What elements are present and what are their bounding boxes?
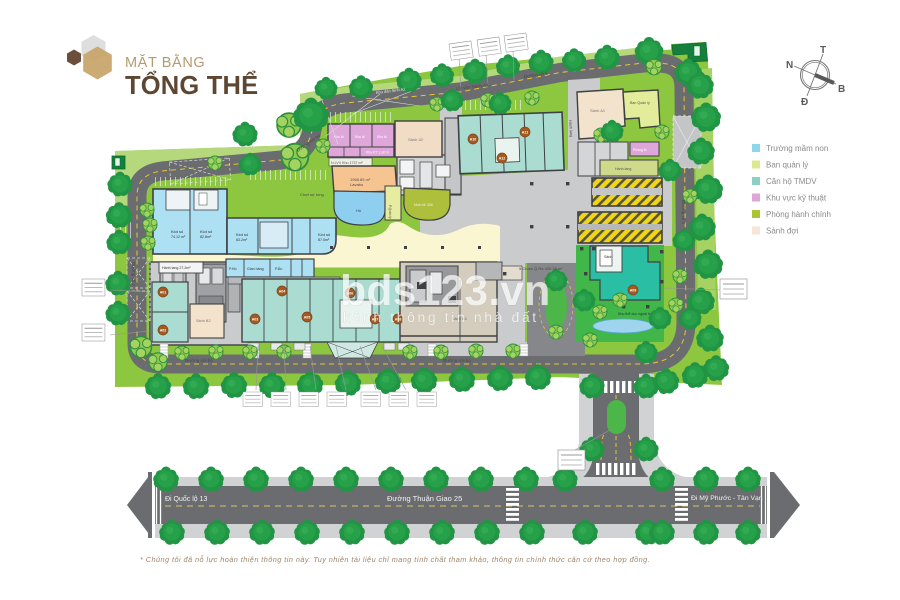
svg-text:* Chúng tôi đã nỗ lực hoàn thi: * Chúng tôi đã nỗ lực hoàn thiện thông t…	[140, 555, 650, 564]
svg-text:82.8m²: 82.8m²	[200, 235, 212, 239]
svg-text:A02: A02	[160, 329, 167, 333]
svg-text:A11: A11	[522, 131, 528, 135]
svg-text:Đường số 3: Đường số 3	[681, 200, 686, 224]
svg-text:T: T	[820, 45, 826, 56]
svg-text:Đường nội bộ: Đường nội bộ	[185, 358, 213, 363]
svg-text:Đ: Đ	[801, 97, 808, 108]
svg-text:A03: A03	[252, 318, 259, 322]
svg-text:Nhà trẻ 308: Nhà trẻ 308	[414, 203, 433, 207]
svg-text:Kiot số: Kiot số	[171, 229, 184, 234]
svg-text:Khu thể dục ngoài trời: Khu thể dục ngoài trời	[618, 312, 654, 316]
svg-text:Đường nội bộ: Đường nội bộ	[443, 358, 471, 363]
svg-text:Khu kt: Khu kt	[377, 135, 387, 139]
svg-text:kênh thông tin nhà đất: kênh thông tin nhà đất	[343, 309, 539, 325]
svg-text:Sảnh đợi: Sảnh đợi	[766, 227, 799, 236]
svg-text:Khu vực kỹ thuật: Khu vực kỹ thuật	[766, 194, 827, 203]
svg-text:Sảnh A1: Sảnh A1	[590, 108, 606, 113]
svg-text:Hồ: Hồ	[356, 208, 362, 213]
svg-text:Phòng kt: Phòng kt	[633, 148, 646, 152]
svg-text:Đường số 2: Đường số 2	[131, 262, 136, 286]
svg-text:Kiot số: Kiot số	[318, 232, 331, 237]
svg-text:N.LVV Khu 1737 m²: N.LVV Khu 1737 m²	[331, 161, 363, 165]
svg-text:MẶT BẰNG: MẶT BẰNG	[125, 53, 205, 71]
svg-text:Hành lang 27.2m²: Hành lang 27.2m²	[162, 266, 191, 270]
svg-text:TỔNG THỂ: TỔNG THỂ	[125, 70, 258, 100]
svg-text:Ban quản lý: Ban quản lý	[766, 161, 808, 170]
svg-text:Phòng hành chính: Phòng hành chính	[766, 210, 831, 219]
svg-text:Đi Mỹ Phước - Tân Vạn: Đi Mỹ Phước - Tân Vạn	[691, 495, 763, 502]
svg-text:Sảnh 42: Sảnh 42	[408, 137, 424, 142]
svg-text:Hành lang: Hành lang	[615, 167, 631, 171]
svg-text:Trường mầm non: Trường mầm non	[766, 144, 828, 153]
svg-text:A12: A12	[499, 157, 506, 161]
svg-text:A09: A09	[630, 289, 637, 293]
svg-text:P.Hồ: P.Hồ	[229, 267, 237, 271]
svg-text:A01: A01	[160, 291, 167, 295]
svg-text:A10: A10	[470, 138, 477, 142]
svg-text:Đi Quốc lộ 13: Đi Quốc lộ 13	[165, 494, 208, 503]
svg-text:B: B	[838, 84, 845, 95]
svg-text:P.Ân: P.Ân	[275, 267, 282, 271]
svg-text:Kiot số: Kiot số	[200, 229, 213, 234]
svg-text:N: N	[786, 60, 793, 71]
svg-text:A04: A04	[279, 290, 286, 294]
svg-text:Kiot số: Kiot số	[236, 232, 249, 237]
svg-text:Sảnh: Sảnh	[604, 255, 612, 259]
svg-text:87.0m²: 87.0m²	[318, 238, 330, 242]
svg-text:Lavabo: Lavabo	[350, 182, 364, 187]
svg-text:Căn hộ TMDV: Căn hộ TMDV	[766, 177, 817, 186]
svg-text:83.2m²: 83.2m²	[236, 238, 248, 242]
svg-text:P.Quản lý: P.Quản lý	[388, 205, 392, 219]
svg-text:Khu kt: Khu kt	[355, 135, 365, 139]
svg-text:bds123.vn: bds123.vn	[340, 267, 550, 315]
svg-text:Chợt sự lưng: Chợt sự lưng	[300, 192, 324, 197]
svg-text:Ban Quản lý: Ban Quản lý	[630, 101, 650, 105]
svg-text:74.12 m²: 74.12 m²	[171, 235, 186, 239]
svg-text:Khu KT 1.18 m: Khu KT 1.18 m	[366, 151, 389, 155]
svg-text:Gian hàng: Gian hàng	[247, 267, 264, 271]
svg-text:Đường Thuận Giao 25: Đường Thuận Giao 25	[387, 494, 462, 503]
svg-text:A05: A05	[304, 316, 311, 320]
svg-text:Sảnh B2: Sảnh B2	[196, 319, 211, 323]
